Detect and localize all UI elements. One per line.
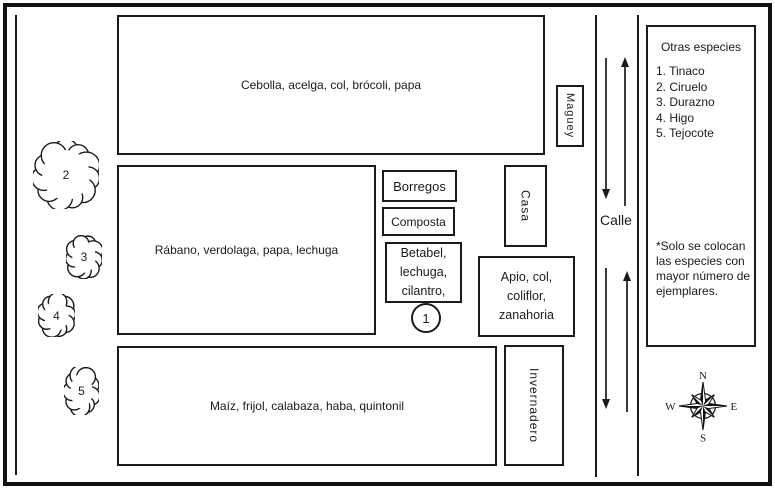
legend-item: 4. Higo [656,111,754,127]
borregos-pen: Borregos [382,170,457,202]
street-arrow-down-top-icon [601,58,611,199]
legend-title: Otras especies [648,40,754,54]
street-arrow-down-bottom-icon [601,268,611,409]
legend-panel: Otras especies 1. Tinaco 2. Ciruelo 3. D… [646,25,756,347]
legend-item: 5. Tejocote [656,126,754,142]
plot-rabano-label: Rábano, verdolaga, papa, lechuga [155,243,338,257]
street-arrow-up-bottom-icon [622,271,632,412]
invernadero-label: Invernadero [527,368,541,443]
street-label: Calle [594,212,638,228]
legend-item: 1. Tinaco [656,64,754,80]
legend-item: 3. Durazno [656,95,754,111]
tree-marker-2: 2 [33,141,99,209]
casa-label: Casa [519,190,533,222]
arrowhead-up-icon [623,271,631,281]
betabel-label: Betabel, lechuga, cilantro, [387,244,460,301]
arrowhead-down-icon [602,189,610,199]
composta-label: Composta [391,215,446,229]
compass-n-label: N [699,370,707,382]
tree-marker-3-number: 3 [66,235,102,279]
apio-label: Apio, col, coliflor, zanahoria [480,268,573,325]
tree-marker-5: 5 [64,367,99,415]
arrow-shaft [605,268,607,399]
maguey-box: Maguey [556,85,584,147]
tinaco-marker: 1 [411,303,441,333]
tree-marker-4: 4 [38,294,75,337]
apio-bed: Apio, col, coliflor, zanahoria [478,256,575,337]
arrowhead-up-icon [621,57,629,67]
legend-list: 1. Tinaco 2. Ciruelo 3. Durazno 4. Higo … [656,64,754,142]
arrowhead-down-icon [602,399,610,409]
arrow-shaft [626,281,628,412]
compass-e-label: E [731,401,738,413]
betabel-bed: Betabel, lechuga, cilantro, [385,242,462,303]
street-boundary-left [595,15,597,477]
borregos-label: Borregos [393,179,446,194]
compass-rose-icon: N S E W [664,367,742,445]
plot-rabano: Rábano, verdolaga, papa, lechuga [117,165,376,335]
left-boundary-line [15,15,17,475]
invernadero-box: Invernadero [504,345,564,466]
composta-box: Composta [382,207,455,236]
street-arrow-up-top-icon [620,57,630,206]
tree-marker-3: 3 [66,235,102,279]
tree-marker-5-number: 5 [64,367,99,415]
garden-plan-diagram: Cebolla, acelga, col, brócoli, papa Rába… [0,0,775,489]
compass-s-label: S [700,433,706,445]
maguey-label: Maguey [564,93,576,138]
street-boundary-right [637,15,639,476]
tree-marker-2-number: 2 [33,141,99,209]
arrow-shaft [624,67,626,206]
arrow-shaft [605,58,607,189]
tree-marker-4-number: 4 [38,294,75,337]
plot-cebolla-label: Cebolla, acelga, col, brócoli, papa [241,78,421,92]
plot-maiz-label: Maíz, frijol, calabaza, haba, quintonil [210,399,404,413]
plot-maiz: Maíz, frijol, calabaza, haba, quintonil [117,346,497,466]
legend-item: 2. Ciruelo [656,80,754,96]
plot-cebolla: Cebolla, acelga, col, brócoli, papa [117,15,545,155]
casa-box: Casa [504,165,547,247]
compass-w-label: W [665,401,676,413]
legend-note: *Solo se colocan las especies con mayor … [656,239,754,299]
tinaco-marker-number: 1 [422,311,429,326]
